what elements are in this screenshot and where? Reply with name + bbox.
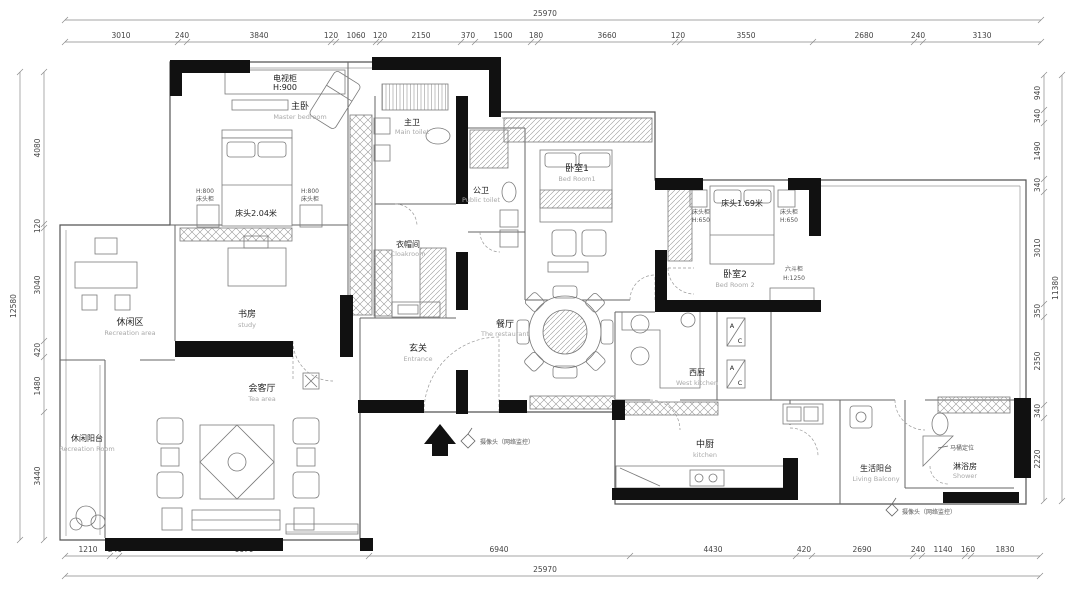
sideboard [530, 396, 615, 409]
svg-text:The restaurant: The restaurant [480, 330, 529, 338]
dimensions-left-labels: 12580 4080 120 3040 420 1480 3440 [9, 138, 42, 485]
room-label-master-bedroom: 主卧 Master bedroom [273, 100, 326, 121]
svg-text:Recreation Room: Recreation Room [59, 445, 114, 453]
bath-cabinet [382, 84, 448, 110]
floor-plan: 25970 3010 240 3840 120 1060 120 2150 37… [0, 0, 1080, 592]
svg-text:West kitchen: West kitchen [676, 379, 718, 387]
svg-text:Shower: Shower [953, 472, 978, 480]
svg-text:床头柜: 床头柜 [780, 208, 798, 216]
svg-text:120: 120 [324, 31, 339, 40]
svg-text:主卧: 主卧 [291, 100, 309, 112]
wardrobe-master [350, 115, 372, 315]
svg-text:120: 120 [33, 219, 42, 234]
svg-text:A: A [730, 364, 735, 372]
toilet [426, 128, 450, 144]
room-label-west-kitchen: 西厨 West kitchen [676, 368, 718, 387]
svg-text:1210: 1210 [78, 545, 97, 554]
svg-text:C: C [738, 379, 743, 387]
svg-text:1060: 1060 [346, 31, 365, 40]
svg-text:420: 420 [33, 343, 42, 358]
door-arcs [293, 204, 948, 484]
svg-text:420: 420 [797, 545, 812, 554]
svg-text:Bed Room 2: Bed Room 2 [715, 281, 754, 289]
dimensions-right-labels: 11380 940 340 1490 340 3010 350 2350 340… [1033, 86, 1060, 469]
svg-text:生活阳台: 生活阳台 [860, 463, 892, 473]
svg-text:240: 240 [911, 545, 926, 554]
wardrobe-bed1 [504, 118, 652, 142]
svg-text:1480: 1480 [33, 376, 42, 395]
svg-text:卧室2: 卧室2 [723, 268, 747, 280]
svg-text:Recreation area: Recreation area [104, 329, 155, 337]
room-label-entrance: 玄关 Entrance [403, 342, 432, 363]
svg-text:2690: 2690 [852, 545, 871, 554]
room-label-shower-room: 淋浴房 Shower [953, 461, 978, 480]
svg-text:1830: 1830 [995, 545, 1014, 554]
nightstand [300, 205, 322, 227]
svg-text:休闲阳台: 休闲阳台 [71, 433, 103, 443]
toilet [502, 182, 516, 202]
entrance-arrow [424, 424, 456, 456]
svg-text:3660: 3660 [597, 31, 616, 40]
svg-text:12580: 12580 [9, 294, 18, 318]
svg-text:2220: 2220 [1033, 449, 1042, 468]
svg-text:3440: 3440 [33, 466, 42, 485]
tea-table [75, 262, 137, 288]
svg-text:H:650: H:650 [692, 217, 710, 224]
room-label-leisure-balcony: 休闲阳台 Recreation Room [59, 433, 114, 453]
svg-text:西厨: 西厨 [689, 368, 705, 377]
camera-note: 摄像头（网络监控） [480, 438, 534, 446]
svg-text:120: 120 [373, 31, 388, 40]
svg-text:study: study [238, 321, 256, 329]
sink [374, 145, 390, 161]
svg-text:床头柜: 床头柜 [196, 195, 214, 203]
room-label-bedroom2: 卧室2 Bed Room 2 [715, 268, 754, 289]
kitchen-counter [616, 466, 784, 488]
svg-text:主卫: 主卫 [404, 117, 420, 127]
svg-text:4080: 4080 [33, 138, 42, 157]
svg-text:电视柜: 电视柜 [273, 73, 297, 83]
svg-text:3010: 3010 [111, 31, 130, 40]
svg-text:1490: 1490 [1033, 141, 1042, 160]
svg-text:350: 350 [1033, 304, 1042, 319]
svg-text:玄关: 玄关 [409, 342, 427, 354]
svg-text:180: 180 [529, 31, 544, 40]
svg-text:书房: 书房 [238, 308, 256, 320]
svg-text:中厨: 中厨 [696, 438, 714, 450]
svg-text:Public toilet: Public toilet [462, 196, 500, 204]
svg-text:六斗柜: 六斗柜 [785, 265, 803, 273]
svg-text:A: A [730, 322, 735, 330]
svg-text:3040: 3040 [33, 275, 42, 294]
tea-room-set [157, 373, 319, 530]
room-label-living-balcony: 生活阳台 Living Balcony [852, 463, 899, 483]
room-label-study: 书房 study [238, 308, 256, 329]
svg-text:H:800: H:800 [196, 188, 214, 195]
svg-text:340: 340 [1033, 404, 1042, 419]
svg-text:240: 240 [911, 31, 926, 40]
svg-text:25970: 25970 [533, 565, 557, 574]
svg-text:会客厅: 会客厅 [248, 382, 275, 394]
svg-text:240: 240 [175, 31, 190, 40]
svg-text:床头柜: 床头柜 [301, 195, 319, 203]
svg-text:衣帽间: 衣帽间 [396, 239, 420, 249]
svg-text:餐厅: 餐厅 [496, 318, 514, 330]
svg-text:3550: 3550 [736, 31, 755, 40]
svg-text:340: 340 [1033, 109, 1042, 124]
room-label-kitchen: 中厨 kitchen [693, 438, 717, 459]
svg-text:H:650: H:650 [780, 217, 798, 224]
svg-text:160: 160 [961, 545, 976, 554]
svg-text:卧室1: 卧室1 [565, 162, 589, 174]
svg-text:H:900: H:900 [273, 83, 297, 92]
label-tv-cabinet: 电视柜 H:900 [273, 73, 297, 92]
svg-text:3130: 3130 [972, 31, 991, 40]
room-label-tea-room: 会客厅 Tea area [247, 382, 275, 403]
label-master-bed-size: 床头2.04米 [235, 208, 277, 218]
label-ns650-right: 床头柜 H:650 [780, 208, 798, 224]
svg-text:Living Balcony: Living Balcony [852, 475, 899, 483]
shower-area [470, 130, 508, 168]
wardrobe-bed2 [668, 183, 692, 261]
svg-text:370: 370 [461, 31, 476, 40]
bookshelf [180, 228, 292, 241]
svg-text:Main toilet: Main toilet [395, 128, 430, 136]
svg-text:淋浴房: 淋浴房 [953, 461, 977, 471]
label-nightstand-left: H:800 床头柜 [196, 188, 214, 203]
desk [228, 248, 286, 286]
svg-text:25970: 25970 [533, 9, 557, 18]
svg-text:120: 120 [671, 31, 686, 40]
dimensions-top-labels: 25970 3010 240 3840 120 1060 120 2150 37… [111, 9, 991, 40]
svg-text:Tea area: Tea area [247, 395, 275, 403]
toilet [932, 413, 948, 435]
corner-shower [923, 436, 953, 466]
svg-text:Cloakroom: Cloakroom [391, 250, 426, 258]
bay-window-seat [286, 524, 358, 534]
svg-text:H:800: H:800 [301, 188, 319, 195]
closet-rack [374, 250, 392, 316]
floor-plan-canvas: 25970 3010 240 3840 120 1060 120 2150 37… [0, 0, 1080, 592]
dimensions-left [17, 69, 47, 543]
svg-text:1140: 1140 [933, 545, 952, 554]
stool [82, 295, 97, 310]
stool [115, 295, 130, 310]
svg-text:1500: 1500 [493, 31, 512, 40]
svg-text:940: 940 [1033, 86, 1042, 101]
svg-text:床头柜: 床头柜 [692, 208, 710, 216]
svg-text:Bed Room1: Bed Room1 [558, 175, 595, 183]
balcony-sink [850, 406, 872, 428]
sink [374, 118, 390, 134]
svg-text:kitchen: kitchen [693, 451, 717, 459]
svg-text:3840: 3840 [249, 31, 268, 40]
camera-note: 摄像头（网络监控） [902, 508, 956, 516]
label-nightstand-right: H:800 床头柜 [301, 188, 319, 203]
sink [500, 230, 518, 247]
svg-text:Entrance: Entrance [403, 355, 432, 363]
svg-text:3010: 3010 [1033, 238, 1042, 257]
svg-text:公卫: 公卫 [473, 186, 489, 195]
toilet-position-note: 马桶定位 [950, 444, 974, 452]
dimensions-top [62, 17, 1044, 45]
svg-text:6940: 6940 [489, 545, 508, 554]
label-bed2-size: 床头1.69米 [721, 198, 763, 208]
bed2 [710, 186, 774, 264]
svg-text:2350: 2350 [1033, 351, 1042, 370]
svg-text:休闲区: 休闲区 [116, 316, 143, 328]
svg-text:H:1250: H:1250 [783, 275, 805, 282]
room-label-master-bath: 主卫 Main toilet [395, 117, 430, 136]
sink [500, 210, 518, 227]
closet-rack [420, 248, 446, 318]
room-label-leisure-area: 休闲区 Recreation area [104, 316, 155, 337]
svg-text:11380: 11380 [1051, 276, 1060, 300]
svg-text:2680: 2680 [854, 31, 873, 40]
label-chest: 六斗柜 H:1250 [783, 265, 805, 282]
svg-text:340: 340 [1033, 178, 1042, 193]
room-label-dining: 餐厅 The restaurant [480, 318, 529, 338]
kitchen-sink [783, 404, 823, 424]
nightstand [197, 205, 219, 227]
kitchen-cabinet [618, 402, 718, 415]
svg-text:4430: 4430 [703, 545, 722, 554]
nightstand [778, 190, 795, 207]
chair [95, 238, 117, 254]
svg-text:C: C [738, 337, 743, 345]
svg-text:2150: 2150 [411, 31, 430, 40]
svg-text:Master bedroom: Master bedroom [273, 113, 326, 121]
storage-shelf [938, 397, 1010, 413]
shoe-cabinet-detail [398, 305, 418, 314]
label-ns650-left: 床头柜 H:650 [692, 208, 710, 224]
nightstand [690, 190, 707, 207]
